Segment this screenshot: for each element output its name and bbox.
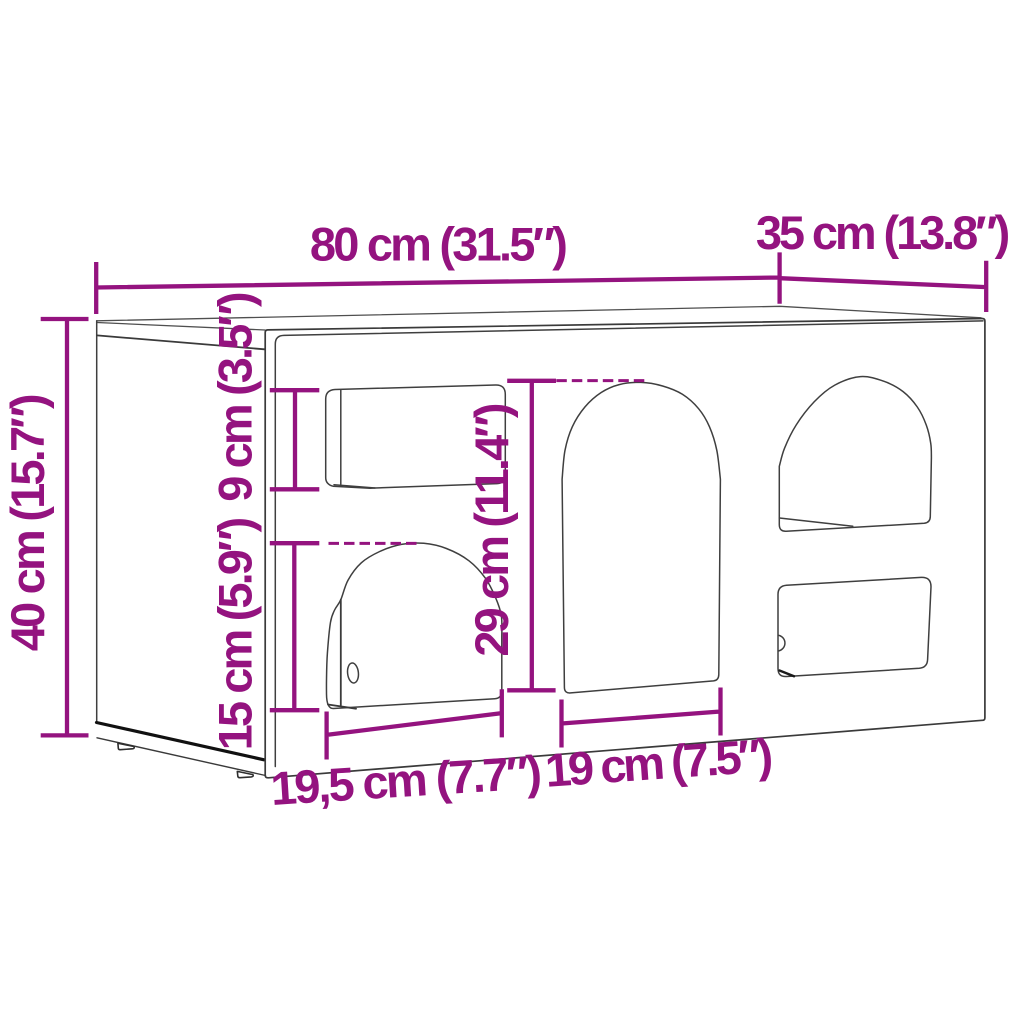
svg-text:29 cm (11.4″): 29 cm (11.4″)	[465, 404, 518, 657]
svg-text:80 cm (31.5″): 80 cm (31.5″)	[310, 218, 566, 271]
svg-text:9 cm (3.5″): 9 cm (3.5″)	[209, 293, 262, 502]
svg-text:35 cm (13.8″): 35 cm (13.8″)	[756, 206, 1009, 259]
svg-text:40 cm (15.7″): 40 cm (15.7″)	[1, 395, 54, 651]
svg-text:15 cm (5.9″): 15 cm (5.9″)	[209, 518, 262, 750]
